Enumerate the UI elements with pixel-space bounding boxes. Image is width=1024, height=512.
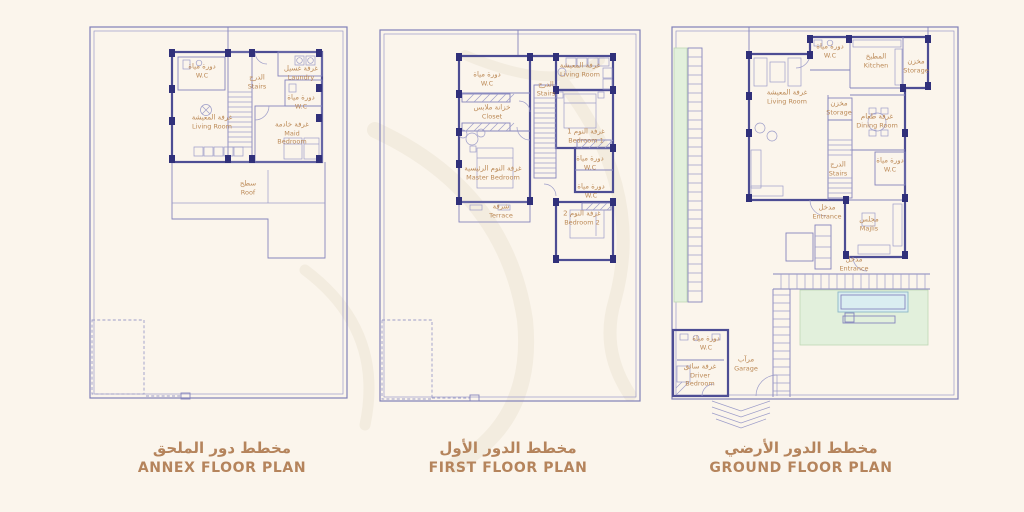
room-name-english: W.C <box>576 163 603 171</box>
blueprint-svg <box>0 0 1024 512</box>
plan-title-english: ANNEX FLOOR PLAN <box>138 460 306 476</box>
room-name-english: Entrance <box>839 264 868 272</box>
annex-plot-dashed-pad <box>92 320 144 394</box>
room-name-english: Entrance <box>812 212 841 220</box>
room-name-english: Living Room <box>767 97 807 105</box>
ground-label-wc-mid: دورة مياة W.C <box>876 157 903 174</box>
room-name-arabic: غرفة النوم الرئيسية <box>464 165 521 174</box>
room-name-arabic: المطبخ <box>864 53 888 62</box>
room-name-english: W.C <box>577 191 604 199</box>
room-name-arabic: دورة مياة <box>287 94 314 103</box>
room-name-english: Stairs <box>248 82 267 90</box>
plan-title-english: FIRST FLOOR PLAN <box>429 460 588 476</box>
room-name-english: W.C <box>287 102 314 110</box>
room-name-english: Living Room <box>192 122 232 130</box>
ground-label-wc-top: دورة مياة W.C <box>816 43 843 60</box>
room-name-english: Dining Room <box>856 121 898 129</box>
first-plan-title: مخطط الدور الأول FIRST FLOOR PLAN <box>429 439 588 476</box>
room-name-english: W.C <box>692 343 719 351</box>
room-name-arabic: مخزن <box>903 58 928 67</box>
first-label-wc-2: دورة مياة W.C <box>576 155 603 172</box>
room-name-english: Maid Bedroom <box>273 129 311 145</box>
room-name-arabic: دورة مياة <box>577 183 604 192</box>
first-plot-dashed-pad <box>382 320 432 399</box>
first-label-master-bedroom: غرفة النوم الرئيسية Master Bedroom <box>464 165 521 182</box>
room-name-arabic: دورة مياة <box>188 63 215 72</box>
room-name-english: Stairs <box>829 169 848 177</box>
room-name-arabic: دورة مياة <box>473 71 500 80</box>
ground-label-entrance-1: مدخل Entrance <box>812 204 841 221</box>
ground-label-dining-room: غرفة طعام Dining Room <box>856 113 898 130</box>
first-label-closet: خزانة ملابس Closet <box>474 104 511 121</box>
first-label-stairs: الدرج Stairs <box>537 81 556 98</box>
room-name-english: Bedroom 1 <box>567 136 605 144</box>
ground-label-driver-bedroom: غرفة سائق Driver Bedroom <box>681 363 719 388</box>
ground-label-storage-center: مخزن Storage <box>826 100 851 117</box>
ground-label-living-room: غرفة المعيشة Living Room <box>767 89 807 106</box>
room-name-arabic: مجلس <box>859 216 879 225</box>
room-name-english: W.C <box>188 71 215 79</box>
room-name-english: Roof <box>240 188 256 196</box>
pergola <box>773 274 930 289</box>
room-name-arabic: مدخل <box>839 256 868 265</box>
ground-label-stairs: الدرج Stairs <box>829 161 848 178</box>
room-name-arabic: غرفة طعام <box>856 113 898 122</box>
ground-label-garage: مرآب Garage <box>734 356 758 373</box>
room-name-arabic: غرفة غسيل <box>284 65 318 74</box>
room-name-english: Driver Bedroom <box>681 371 719 387</box>
first-label-bedroom-2: غرفة النوم 2 Bedroom 2 <box>563 210 601 227</box>
room-name-english: Kitchen <box>864 61 888 69</box>
room-name-arabic: غرفة خادمة <box>273 121 311 130</box>
first-label-wc-1: دورة مياة W.C <box>473 71 500 88</box>
room-name-arabic: غرفة سائق <box>681 363 719 372</box>
room-name-arabic: مخزن <box>826 100 851 109</box>
first-label-wc-3: دورة مياة W.C <box>577 183 604 200</box>
room-name-english: Bedroom 2 <box>563 218 601 226</box>
annex-label-wc-2: دورة مياة W.C <box>287 94 314 111</box>
room-name-arabic: الدرج <box>829 161 848 170</box>
room-name-english: Stairs <box>537 89 556 97</box>
annex-label-stairs: الدرج Stairs <box>248 74 267 91</box>
annex-label-living-room: غرفة المعيشة Living Room <box>192 114 232 131</box>
annex-label-wc-1: دورة مياة W.C <box>188 63 215 80</box>
annex-label-maid-bedroom: غرفة خادمة Maid Bedroom <box>273 121 311 146</box>
driveway-marking <box>712 401 770 428</box>
room-name-arabic: غرفة النوم 1 <box>567 128 605 137</box>
garage-door-arc <box>756 375 777 396</box>
room-name-english: W.C <box>876 165 903 173</box>
ground-plan-title: مخطط الدور الأرضي GROUND FLOOR PLAN <box>709 439 892 476</box>
ground-label-wc-driver: دورة مياة W.C <box>692 335 719 352</box>
room-name-english: Storage <box>826 108 851 116</box>
side-planter <box>674 48 687 302</box>
first-label-terrace: شرفة Terrace <box>489 203 513 220</box>
room-name-arabic: غرفة النوم 2 <box>563 210 601 219</box>
room-name-arabic: سطح <box>240 180 256 189</box>
annex-label-roof: سطح Roof <box>240 180 256 197</box>
first-label-living-room: غرفة المعيشة Living Room <box>560 62 600 79</box>
plan-title-english: GROUND FLOOR PLAN <box>709 460 892 476</box>
room-name-english: W.C <box>473 79 500 87</box>
room-name-arabic: الدرج <box>537 81 556 90</box>
floor-plans-canvas: دورة مياة W.C الدرج Stairs غرفة غسيل Lau… <box>0 0 1024 512</box>
room-name-english: Terrace <box>489 211 513 219</box>
room-name-english: Laundry <box>284 73 318 81</box>
first-label-bedroom-1: غرفة النوم 1 Bedroom 1 <box>567 128 605 145</box>
room-name-english: Closet <box>474 112 511 120</box>
ground-label-storage-right: مخزن Storage <box>903 58 928 75</box>
room-name-arabic: دورة مياة <box>816 43 843 52</box>
room-name-arabic: مرآب <box>734 356 758 365</box>
room-name-arabic: دورة مياة <box>576 155 603 164</box>
room-name-arabic: مدخل <box>812 204 841 213</box>
annex-floor-plan-drawing <box>90 27 347 399</box>
room-name-arabic: دورة مياة <box>876 157 903 166</box>
room-name-arabic: دورة مياة <box>692 335 719 344</box>
room-name-english: W.C <box>816 51 843 59</box>
annex-label-laundry: غرفة غسيل Laundry <box>284 65 318 82</box>
plan-title-arabic: مخطط دور الملحق <box>138 439 306 457</box>
plan-title-arabic: مخطط الدور الأرضي <box>709 439 892 457</box>
room-name-english: Living Room <box>560 70 600 78</box>
first-stairs-icon <box>534 98 556 173</box>
room-name-arabic: الدرج <box>248 74 267 83</box>
annex-plan-title: مخطط دور الملحق ANNEX FLOOR PLAN <box>138 439 306 476</box>
ground-label-entrance-2: مدخل Entrance <box>839 256 868 273</box>
plan-title-arabic: مخطط الدور الأول <box>429 439 588 457</box>
room-name-english: Storage <box>903 66 928 74</box>
room-name-english: Garage <box>734 364 758 372</box>
annex-plot-boundary <box>90 27 347 398</box>
ground-label-kitchen: المطبخ Kitchen <box>864 53 888 70</box>
ground-label-majlis: مجلس Majlis <box>859 216 879 233</box>
room-name-arabic: غرفة المعيشة <box>192 114 232 123</box>
room-name-english: Master Bedroom <box>464 173 521 181</box>
room-name-arabic: غرفة المعيشة <box>767 89 807 98</box>
room-name-arabic: غرفة المعيشة <box>560 62 600 71</box>
room-name-arabic: خزانة ملابس <box>474 104 511 113</box>
annex-roof-parapet <box>172 162 325 258</box>
room-name-english: Majlis <box>859 224 879 232</box>
room-name-arabic: شرفة <box>489 203 513 212</box>
